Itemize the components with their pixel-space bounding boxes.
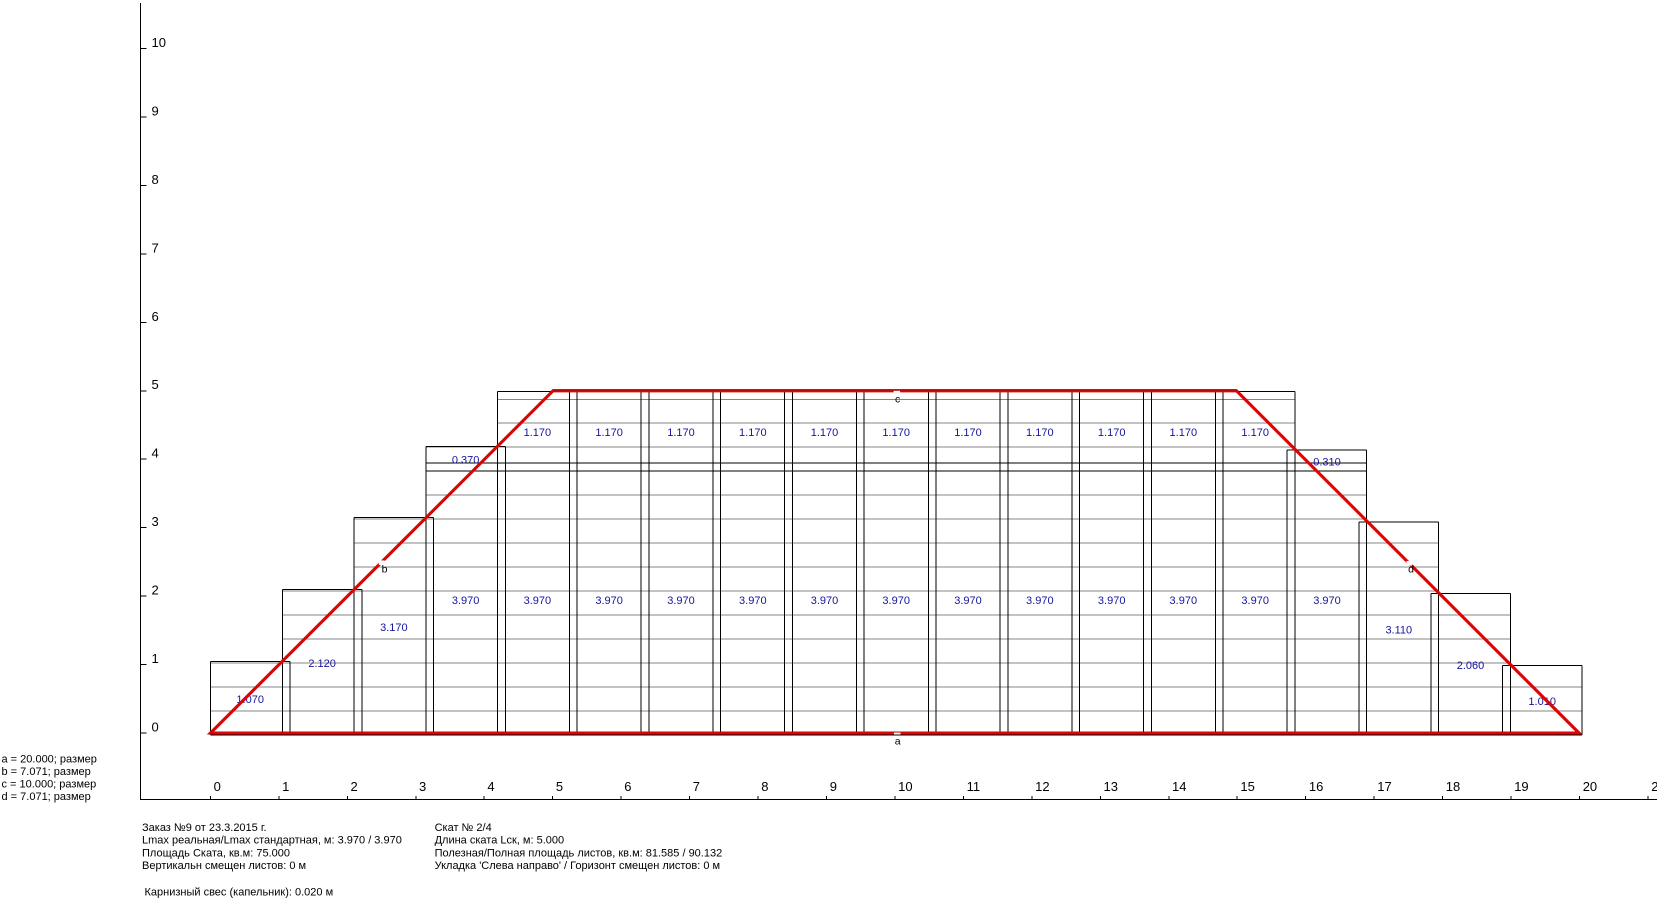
svg-text:b: b <box>382 563 388 575</box>
svg-text:0.370: 0.370 <box>452 455 480 467</box>
svg-text:19: 19 <box>1514 779 1528 794</box>
svg-text:3.970: 3.970 <box>1241 595 1269 607</box>
svg-text:3.970: 3.970 <box>667 595 695 607</box>
svg-text:3: 3 <box>419 779 426 794</box>
svg-text:3: 3 <box>152 514 159 529</box>
svg-text:8: 8 <box>152 172 159 187</box>
svg-text:3.970: 3.970 <box>1098 595 1126 607</box>
svg-text:1.170: 1.170 <box>882 427 910 439</box>
svg-text:Карнизный свес (капельник): 0.: Карнизный свес (капельник): 0.020 м <box>145 886 334 898</box>
svg-text:c = 10.000; размер: c = 10.000; размер <box>2 779 97 791</box>
svg-text:Вертикальн смещен листов: 0 м: Вертикальн смещен листов: 0 м <box>142 860 306 872</box>
svg-text:7: 7 <box>152 240 159 255</box>
svg-text:10: 10 <box>898 779 912 794</box>
svg-text:1.170: 1.170 <box>524 427 552 439</box>
svg-text:1.170: 1.170 <box>667 427 695 439</box>
svg-text:2.060: 2.060 <box>1457 660 1485 672</box>
svg-text:Укладка 'Слева направо' / Гори: Укладка 'Слева направо' / Горизонт смеще… <box>435 860 721 872</box>
svg-text:Полезная/Полная площадь листов: Полезная/Полная площадь листов, кв.м: 81… <box>435 847 723 859</box>
svg-text:c: c <box>895 394 900 406</box>
svg-text:2: 2 <box>351 779 358 794</box>
svg-text:21: 21 <box>1651 779 1657 794</box>
svg-text:4: 4 <box>152 446 159 461</box>
svg-text:2.120: 2.120 <box>308 658 336 670</box>
svg-text:Длина ската Lск, м: 5.000: Длина ската Lск, м: 5.000 <box>435 835 565 847</box>
svg-text:3.970: 3.970 <box>954 595 982 607</box>
svg-text:20: 20 <box>1583 779 1597 794</box>
svg-text:3.170: 3.170 <box>380 622 408 634</box>
svg-text:Заказ №9 от 23.3.2015 г.: Заказ №9 от 23.3.2015 г. <box>142 822 267 834</box>
svg-text:3.970: 3.970 <box>811 595 839 607</box>
svg-text:17: 17 <box>1377 779 1391 794</box>
svg-text:b = 7.071; размер: b = 7.071; размер <box>2 766 91 778</box>
svg-text:3.970: 3.970 <box>452 595 480 607</box>
svg-text:1: 1 <box>152 651 159 666</box>
svg-text:16: 16 <box>1309 779 1323 794</box>
svg-text:3.970: 3.970 <box>1313 595 1341 607</box>
svg-text:3.110: 3.110 <box>1385 624 1412 636</box>
svg-text:d = 7.071; размер: d = 7.071; размер <box>2 791 91 803</box>
svg-text:6: 6 <box>624 779 631 794</box>
svg-text:Lmax реальная/Lmax стандартная: Lmax реальная/Lmax стандартная, м: 3.970… <box>142 835 402 847</box>
svg-text:0: 0 <box>152 720 159 735</box>
svg-text:3.970: 3.970 <box>739 595 767 607</box>
svg-text:0: 0 <box>214 779 221 794</box>
svg-text:18: 18 <box>1446 779 1460 794</box>
svg-text:1: 1 <box>282 779 289 794</box>
svg-text:9: 9 <box>152 103 159 118</box>
svg-text:3.970: 3.970 <box>595 595 623 607</box>
svg-text:1.170: 1.170 <box>1098 427 1126 439</box>
svg-text:1.170: 1.170 <box>954 427 982 439</box>
svg-text:1.170: 1.170 <box>811 427 839 439</box>
svg-text:1.170: 1.170 <box>1170 427 1198 439</box>
svg-text:12: 12 <box>1035 779 1049 794</box>
svg-text:1.170: 1.170 <box>1026 427 1054 439</box>
svg-text:3.970: 3.970 <box>1026 595 1054 607</box>
svg-text:5: 5 <box>556 779 563 794</box>
svg-text:a: a <box>895 736 901 748</box>
svg-text:15: 15 <box>1240 779 1254 794</box>
svg-text:3.970: 3.970 <box>524 595 552 607</box>
svg-text:8: 8 <box>761 779 768 794</box>
svg-text:0.310: 0.310 <box>1313 456 1341 468</box>
svg-text:14: 14 <box>1172 779 1186 794</box>
svg-text:6: 6 <box>152 309 159 324</box>
svg-text:10: 10 <box>152 35 166 50</box>
svg-text:13: 13 <box>1104 779 1118 794</box>
svg-text:3.970: 3.970 <box>882 595 910 607</box>
svg-text:7: 7 <box>693 779 700 794</box>
svg-text:3.970: 3.970 <box>1170 595 1198 607</box>
svg-text:5: 5 <box>152 377 159 392</box>
svg-text:4: 4 <box>487 779 494 794</box>
svg-text:1.170: 1.170 <box>1241 427 1269 439</box>
svg-text:11: 11 <box>967 779 981 794</box>
svg-text:Площадь Ската, кв.м: 75.000: Площадь Ската, кв.м: 75.000 <box>142 847 290 859</box>
svg-text:9: 9 <box>830 779 837 794</box>
svg-text:d: d <box>1408 563 1414 575</box>
svg-text:1.170: 1.170 <box>739 427 767 439</box>
svg-text:2: 2 <box>152 583 159 598</box>
svg-text:1.170: 1.170 <box>595 427 623 439</box>
svg-text:Скат № 2/4: Скат № 2/4 <box>435 822 492 834</box>
svg-text:a = 20.000; размер: a = 20.000; размер <box>2 754 97 766</box>
